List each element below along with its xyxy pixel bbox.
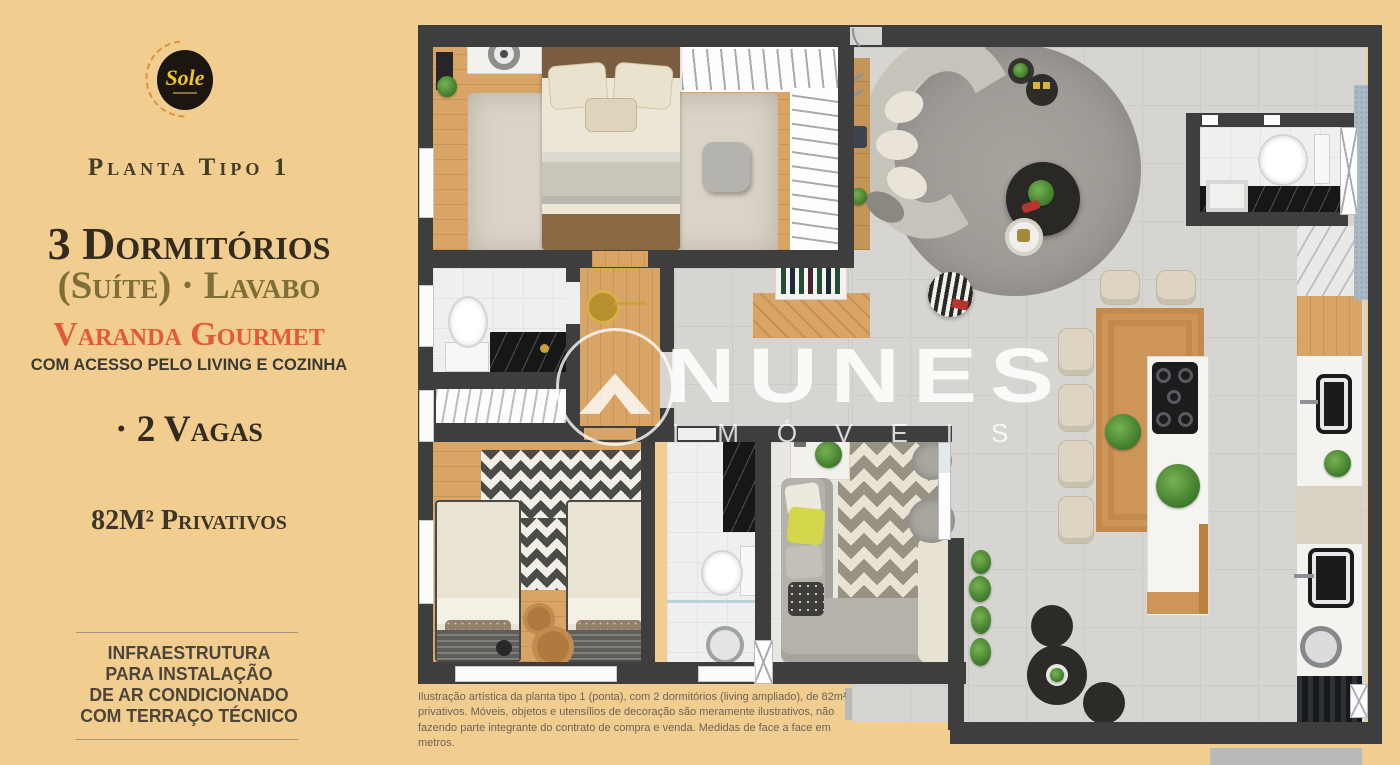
disclaimer-text: Ilustração artística da planta tipo 1 (p… <box>418 690 858 752</box>
window-suite <box>419 148 434 218</box>
sofa-pillow-patterned <box>788 582 824 616</box>
planter-strip <box>969 550 993 670</box>
wine-bottle <box>799 265 804 294</box>
infra-line: PARA INSTALAÇÃO <box>4 664 374 685</box>
nunes-watermark-brand: NUNES <box>666 338 1067 415</box>
window-service <box>419 390 434 442</box>
cooktop <box>1152 362 1198 434</box>
varanda-stool <box>1083 682 1125 724</box>
shower-glass-line <box>667 600 755 603</box>
burner <box>1178 368 1193 383</box>
varanda-plate-plant <box>1050 668 1064 682</box>
yellow-decor <box>1043 82 1050 89</box>
wine-bottle <box>817 265 822 294</box>
plan-type-label: Planta Tipo 1 <box>0 154 378 182</box>
bathroom2-toilet <box>701 550 743 596</box>
yellow-decor <box>1033 82 1040 89</box>
dining-chair <box>1156 270 1196 305</box>
suite-double-bed <box>542 40 680 250</box>
infra-line: INFRAESTRUTURA <box>4 643 374 664</box>
small-table-plant <box>1013 63 1028 78</box>
island-plant <box>1156 464 1200 508</box>
twin-bed-2 <box>566 500 652 662</box>
bathroom2-shower-door <box>754 640 773 684</box>
bed-foot-blanket <box>542 214 680 250</box>
small-round-table-2 <box>1026 74 1058 106</box>
gourmet-sink <box>1308 548 1354 608</box>
round-prep-sink <box>1300 626 1342 668</box>
bed-headboard <box>568 630 650 660</box>
wine-bottle <box>781 265 786 294</box>
sofa-pillow-yellow <box>786 506 826 546</box>
nunes-watermark-segment: IMÓVEIS <box>672 418 1046 449</box>
bathroom2-shower-marble <box>723 442 755 532</box>
divider-bottom <box>76 739 298 740</box>
suite-vanity-counter <box>490 332 566 372</box>
wall-varanda-side <box>948 538 964 730</box>
window-bedroom2 <box>419 520 434 604</box>
headline-dormitorios: 3 Dormitórios <box>0 221 378 267</box>
wine-bottle <box>808 265 813 294</box>
wall-varanda-bottom <box>950 722 1382 744</box>
infra-line: DE AR CONDICIONADO <box>4 685 374 706</box>
counter-plant-bowl <box>1324 450 1351 477</box>
lavabo-door-gap2 <box>1264 115 1280 125</box>
bathroom2-round-sink <box>706 626 744 664</box>
burner <box>1156 412 1171 427</box>
chaise-cushion <box>918 538 950 662</box>
window-bathroom2-bottom <box>698 666 756 682</box>
closet-top-rack <box>680 47 842 92</box>
bed-gray-blanket <box>542 152 680 204</box>
floorplan-marketing-image: Sole Planta Tipo 1 3 Dormitórios (Suíte)… <box>0 0 1400 765</box>
kitchen-sink <box>1316 374 1352 434</box>
island-wood-bar <box>1199 524 1208 614</box>
wall-bathroom2-right <box>755 442 771 662</box>
burner <box>1167 390 1181 404</box>
sole-logo-subline <box>173 92 197 94</box>
wall-lavabo-left <box>1186 113 1200 226</box>
private-area-label: 82M² Privativos <box>0 505 378 537</box>
suite-pouf <box>702 142 750 192</box>
wall-right <box>1368 25 1382 744</box>
lavabo-sink <box>1206 180 1248 212</box>
island-wood-end <box>1147 592 1207 614</box>
hall-mirror-arm <box>614 302 646 305</box>
dining-table-plant <box>1105 414 1141 450</box>
duct-panel <box>1350 684 1368 718</box>
burner <box>1156 368 1171 383</box>
dining-chair <box>1100 270 1140 305</box>
headline-suite-lavabo: (Suíte) · Lavabo <box>0 266 378 305</box>
wall-suite-right <box>838 25 854 268</box>
sole-logo: Sole <box>157 50 213 110</box>
wall-top <box>425 25 1382 47</box>
closet-side-rack <box>790 88 842 254</box>
lavabo-shower-door <box>1340 127 1358 215</box>
twin-bed-1 <box>435 500 521 662</box>
kitchen-faucet <box>1300 400 1318 404</box>
gold-faucet <box>540 344 549 353</box>
hall-gold-mirror <box>586 290 620 324</box>
lavabo-toilet <box>1258 134 1308 186</box>
gourmet-faucet <box>1294 574 1314 578</box>
counter-marble-section <box>1297 226 1362 296</box>
suite-door-gap <box>592 251 648 267</box>
lavabo-toilet-tank <box>1314 134 1330 184</box>
dining-chair <box>1058 496 1094 544</box>
feature-varanda-gourmet: Varanda Gourmet <box>0 318 378 352</box>
burner <box>1178 412 1193 427</box>
window-bedroom2-bottom <box>455 666 617 682</box>
sofa-pillow-gray <box>785 545 823 579</box>
varanda-table-small <box>1031 605 1073 647</box>
suitebath-door-gap <box>566 282 580 324</box>
exterior-slab-2 <box>1210 748 1362 765</box>
dining-chair <box>1058 440 1094 488</box>
suite-plant <box>437 76 457 97</box>
counter-wood-section <box>1297 296 1362 356</box>
window-suitebath <box>419 285 434 347</box>
balcony-glass-door <box>938 442 951 540</box>
infra-text: INFRAESTRUTURA PARA INSTALAÇÃO DE AR CON… <box>4 643 374 727</box>
wine-bottle <box>826 265 831 294</box>
wall-bedroom2-right <box>641 442 655 662</box>
suite-toilet <box>448 296 488 348</box>
bed-small-pillow <box>585 98 637 132</box>
divider-top <box>76 632 298 633</box>
wall-lavabo-bottom <box>1186 212 1348 226</box>
feature-subtitle: COM ACESSO PELO LIVING E COZINHA <box>6 355 373 375</box>
side-table-decor <box>1017 229 1030 242</box>
black-disc-decor <box>496 640 512 656</box>
sole-logo-text: Sole <box>165 67 204 89</box>
counter-beige-section <box>1297 486 1362 544</box>
infra-line: COM TERRAÇO TÉCNICO <box>4 706 374 727</box>
vagas-label: · 2 Vagas <box>0 408 378 451</box>
nunes-logo-icon <box>556 328 674 446</box>
lavabo-door-gap <box>1202 115 1218 125</box>
wine-bottle <box>790 265 795 294</box>
wine-bottle <box>835 265 840 294</box>
